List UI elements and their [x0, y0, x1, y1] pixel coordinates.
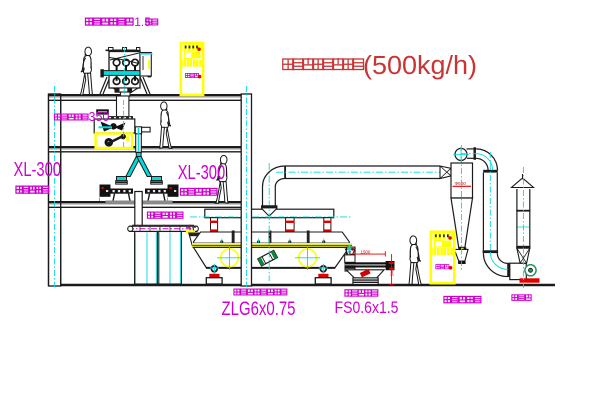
svg-text:XL-300: XL-300: [14, 159, 62, 181]
svg-text:350: 350: [89, 110, 110, 124]
svg-text:XL-300: XL-300: [178, 162, 226, 184]
svg-text:FS0.6x1.5: FS0.6x1.5: [335, 298, 399, 317]
svg-text:ZLG6x0.75: ZLG6x0.75: [222, 298, 296, 320]
svg-text:540: 540: [390, 268, 395, 276]
svg-text:1500: 1500: [361, 249, 371, 254]
svg-text:(500kg/h): (500kg/h): [363, 52, 477, 80]
svg-text:Φ600: Φ600: [455, 181, 467, 186]
